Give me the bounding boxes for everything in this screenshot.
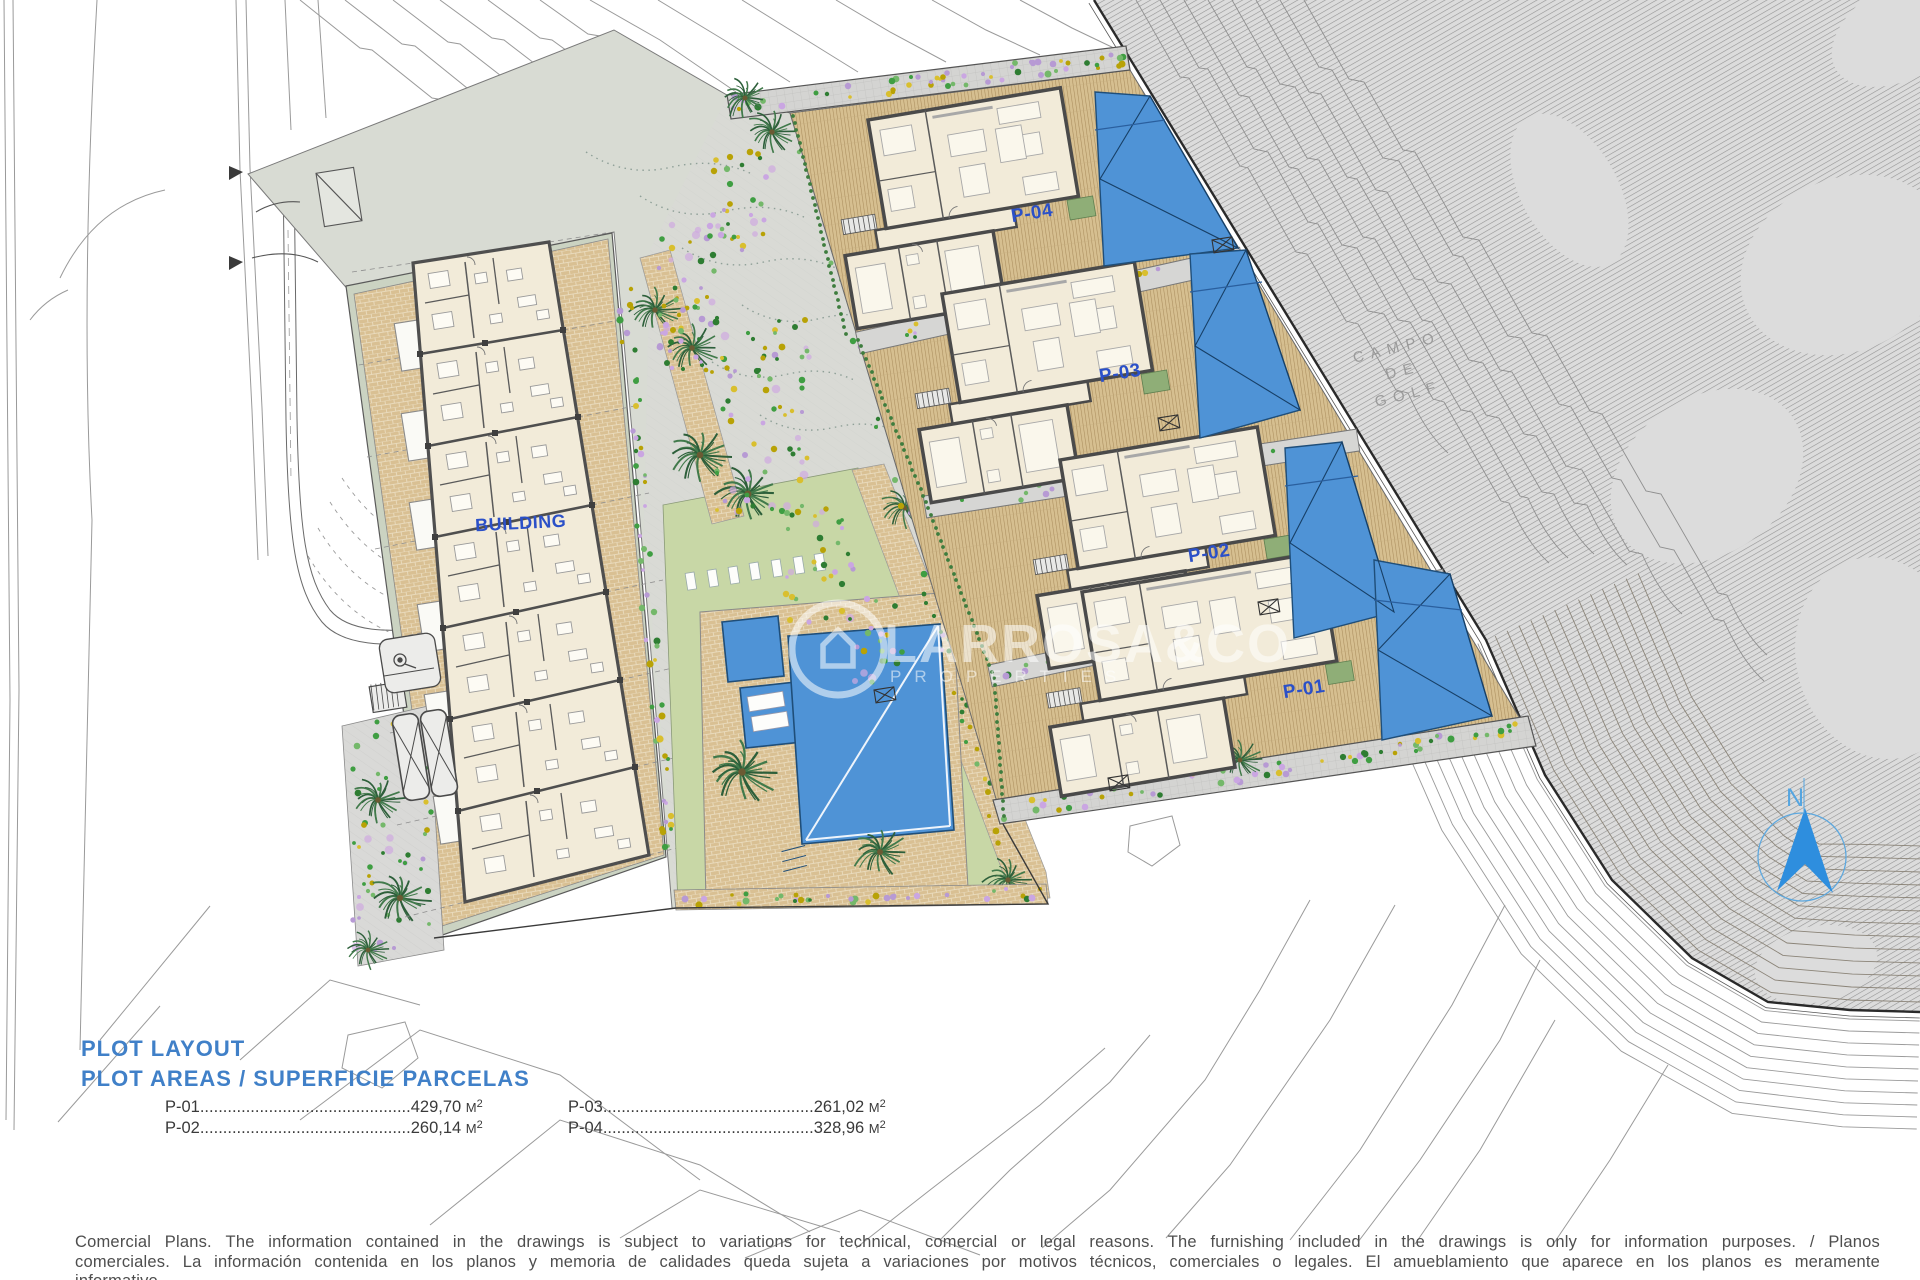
svg-text:LARROSA&CO: LARROSA&CO [884, 614, 1291, 674]
svg-text:N: N [1786, 784, 1804, 812]
svg-text:PLOT LAYOUT: PLOT LAYOUT [81, 1036, 245, 1061]
svg-text:P-02..........................: P-02....................................… [165, 1119, 483, 1137]
svg-text:PLOT AREAS / SUPERFICIE PARCEL: PLOT AREAS / SUPERFICIE PARCELAS [81, 1066, 530, 1091]
svg-text:PROPERTIES: PROPERTIES [890, 667, 1129, 686]
svg-text:P-04..........................: P-04....................................… [568, 1119, 886, 1137]
svg-text:P-01..........................: P-01....................................… [165, 1098, 483, 1116]
svg-text:P-03..........................: P-03....................................… [568, 1098, 886, 1116]
